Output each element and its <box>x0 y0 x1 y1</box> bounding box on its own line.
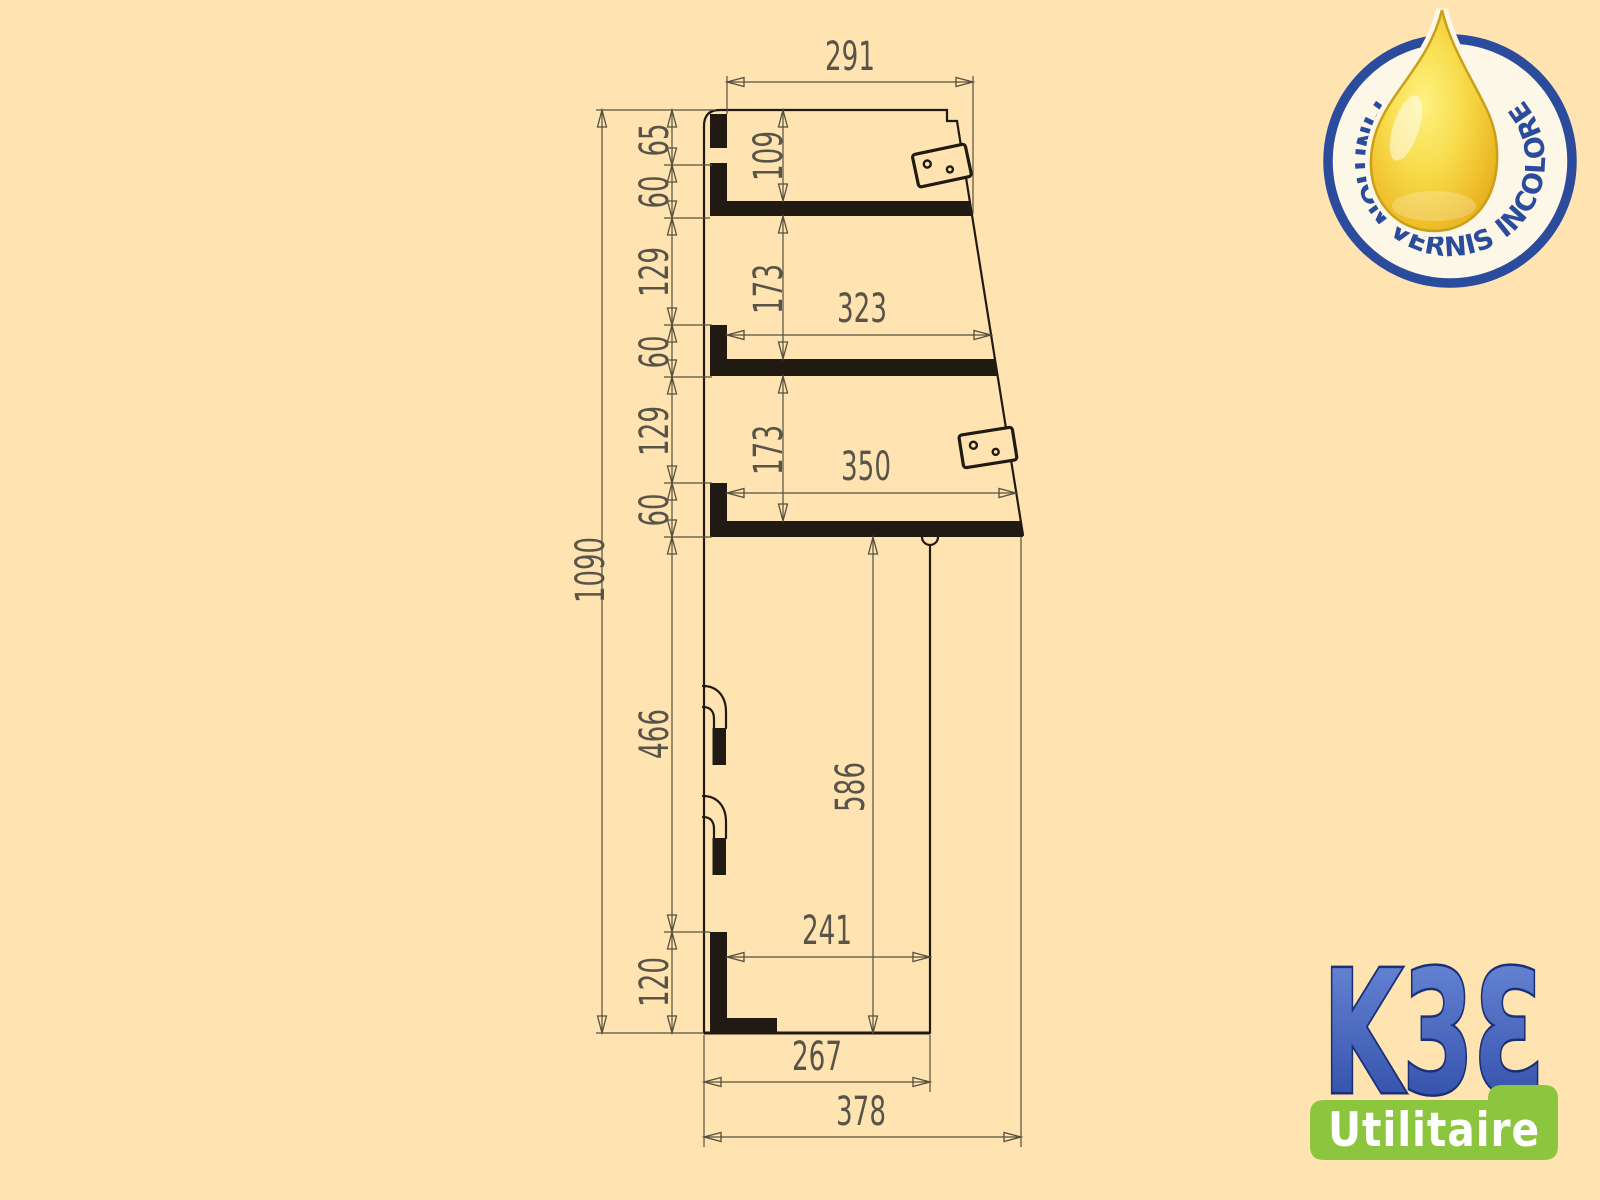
dimension-label-1090: 1090 <box>568 537 614 603</box>
top-mount-strip <box>710 114 727 148</box>
dimension-label-378: 378 <box>836 1089 886 1135</box>
dimension-label-129a: 129 <box>632 247 678 297</box>
drop-bottom-shine <box>1392 191 1476 221</box>
dimension-label-466: 466 <box>632 709 678 759</box>
dimension-label-65: 65 <box>632 124 678 157</box>
dimension-label-173b: 173 <box>746 425 792 475</box>
dimension-label-173a: 173 <box>746 264 792 314</box>
dimension-label-323: 323 <box>837 286 887 332</box>
dimension-label-586: 586 <box>828 762 874 812</box>
dimension-label-109: 109 <box>746 131 792 181</box>
page-canvas: 291 65 60 129 60 129 60 466 120 1090 109… <box>0 0 1600 1200</box>
kbe-utilitaire-logo: K3Ɛ Utilitaire <box>1310 935 1558 1160</box>
mounting-plate-2 <box>959 427 1017 468</box>
dimension-label-60c: 60 <box>632 494 678 527</box>
dimension-label-60a: 60 <box>632 176 678 209</box>
dimension-label-120: 120 <box>632 957 678 1007</box>
dimension-label-291: 291 <box>825 34 875 80</box>
dimension-label-267: 267 <box>792 1034 842 1080</box>
brand-tagline: Utilitaire <box>1328 1103 1540 1158</box>
shelf-1 <box>710 201 973 216</box>
dimension-label-241: 241 <box>802 908 852 954</box>
dimension-label-60b: 60 <box>632 336 678 369</box>
dimension-label-129b: 129 <box>632 406 678 456</box>
dimension-label-350: 350 <box>841 444 891 490</box>
